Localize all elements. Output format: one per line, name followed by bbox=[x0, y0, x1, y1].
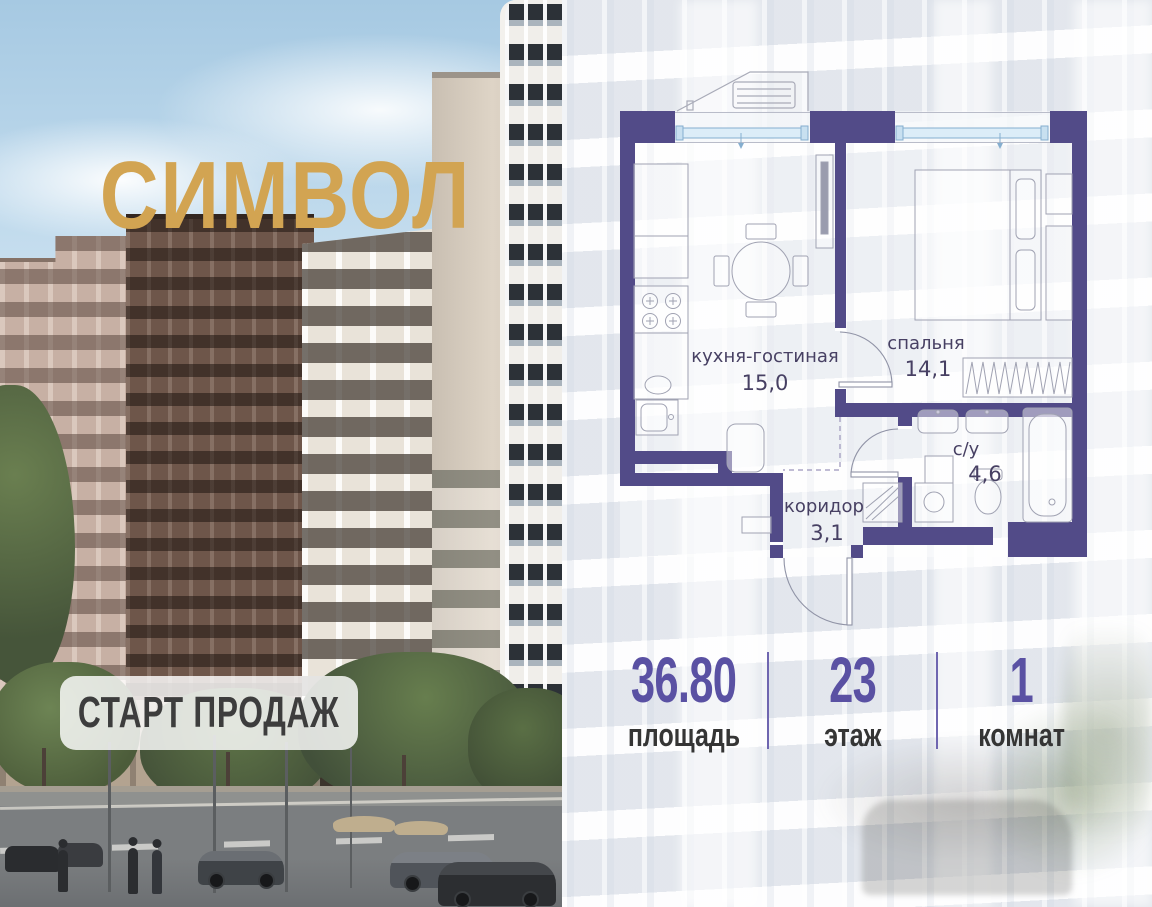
shoe-cabinet bbox=[742, 517, 771, 533]
room-name-corridor: коридор bbox=[784, 496, 864, 517]
car-wheel bbox=[454, 891, 471, 907]
promo-banner[interactable]: СИМВОЛ СТАРТ ПРОДАЖ bbox=[0, 0, 1152, 907]
stat-floor-value: 23 bbox=[769, 648, 936, 712]
radiator-icon bbox=[963, 358, 1072, 397]
stat-rooms-label: комнат bbox=[938, 719, 1105, 751]
stat-area-value: 36.80 bbox=[600, 648, 767, 712]
room-area-bedroom: 14,1 bbox=[905, 357, 952, 381]
tv-icon bbox=[816, 155, 833, 248]
stat-floor: 23 этаж bbox=[769, 648, 936, 753]
nightstand bbox=[1046, 174, 1072, 214]
lamp-post bbox=[285, 742, 288, 892]
balcony-outline bbox=[677, 72, 808, 111]
bed-icon bbox=[915, 170, 1041, 320]
lamp-post bbox=[108, 742, 111, 892]
sedan-car bbox=[198, 851, 284, 885]
room-name-bathroom: с/у bbox=[953, 439, 980, 460]
room-area-kitchen: 15,0 bbox=[742, 371, 789, 395]
cafe-umbrella bbox=[394, 821, 448, 835]
stat-floor-label: этаж bbox=[769, 719, 936, 751]
kitchen-counter bbox=[634, 333, 688, 399]
car-wheel bbox=[522, 891, 539, 907]
floor-plan: кухня-гостиная 15,0 спальня 14,1 с/у 4,6… bbox=[600, 50, 1110, 650]
faded-car bbox=[862, 800, 1072, 895]
room-name-kitchen: кухня-гостиная bbox=[691, 346, 838, 367]
sales-start-badge: СТАРТ ПРОДАЖ bbox=[60, 676, 358, 750]
fridge-icon bbox=[634, 164, 688, 278]
apartment-stats: 36.80 площадь 23 этаж 1 комнат bbox=[600, 648, 1105, 753]
stat-area: 36.80 площадь bbox=[600, 648, 767, 753]
parked-car bbox=[5, 846, 60, 872]
stat-area-label: площадь bbox=[600, 719, 767, 751]
kitchen-sink-icon bbox=[636, 400, 678, 435]
car-wheel bbox=[404, 875, 421, 892]
dark-car bbox=[438, 862, 556, 906]
cafe-umbrella bbox=[333, 816, 395, 832]
stat-rooms-value: 1 bbox=[938, 648, 1105, 712]
pedestrian bbox=[128, 848, 138, 894]
project-logo: СИМВОЛ bbox=[55, 148, 515, 244]
car-wheel bbox=[258, 872, 275, 889]
stat-rooms: 1 комнат bbox=[938, 648, 1105, 753]
dresser bbox=[1046, 226, 1072, 320]
boiler-icon bbox=[727, 424, 764, 472]
pedestrian bbox=[152, 850, 162, 894]
room-area-bathroom: 4,6 bbox=[968, 462, 1001, 486]
wardrobe-icon bbox=[863, 483, 902, 522]
room-area-corridor: 3,1 bbox=[810, 521, 843, 545]
pedestrian bbox=[58, 850, 68, 892]
room-name-bedroom: спальня bbox=[887, 333, 964, 354]
bathtub-icon bbox=[1023, 408, 1072, 522]
stove-icon bbox=[634, 286, 688, 333]
car-wheel bbox=[208, 872, 225, 889]
